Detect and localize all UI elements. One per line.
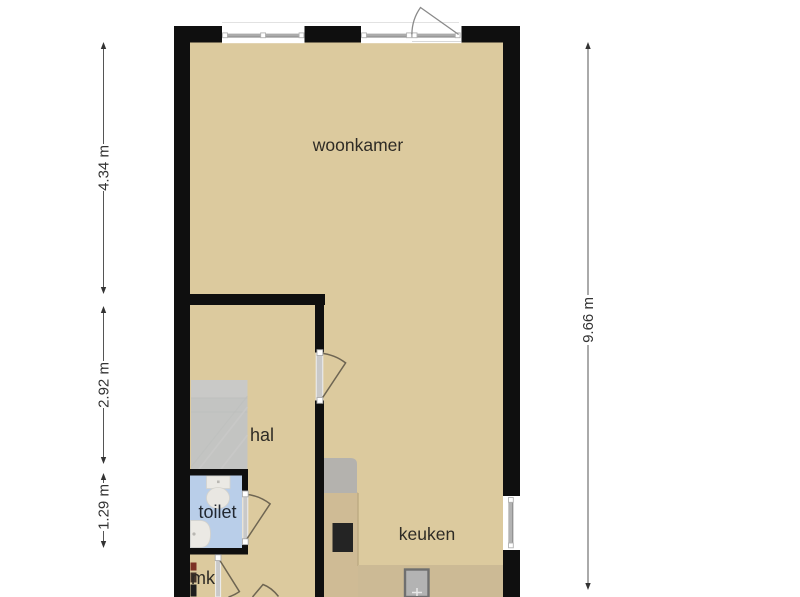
svg-text:keuken: keuken [399,524,455,544]
svg-text:toilet: toilet [198,502,236,522]
svg-text:hal: hal [250,425,274,445]
svg-text:4.34 m: 4.34 m [96,145,113,191]
svg-text:mk: mk [191,568,216,588]
svg-text:2.92 m: 2.92 m [96,362,113,408]
svg-text:1.29 m: 1.29 m [96,484,113,530]
svg-text:woonkamer: woonkamer [312,135,404,155]
svg-text:9.66 m: 9.66 m [580,297,597,343]
